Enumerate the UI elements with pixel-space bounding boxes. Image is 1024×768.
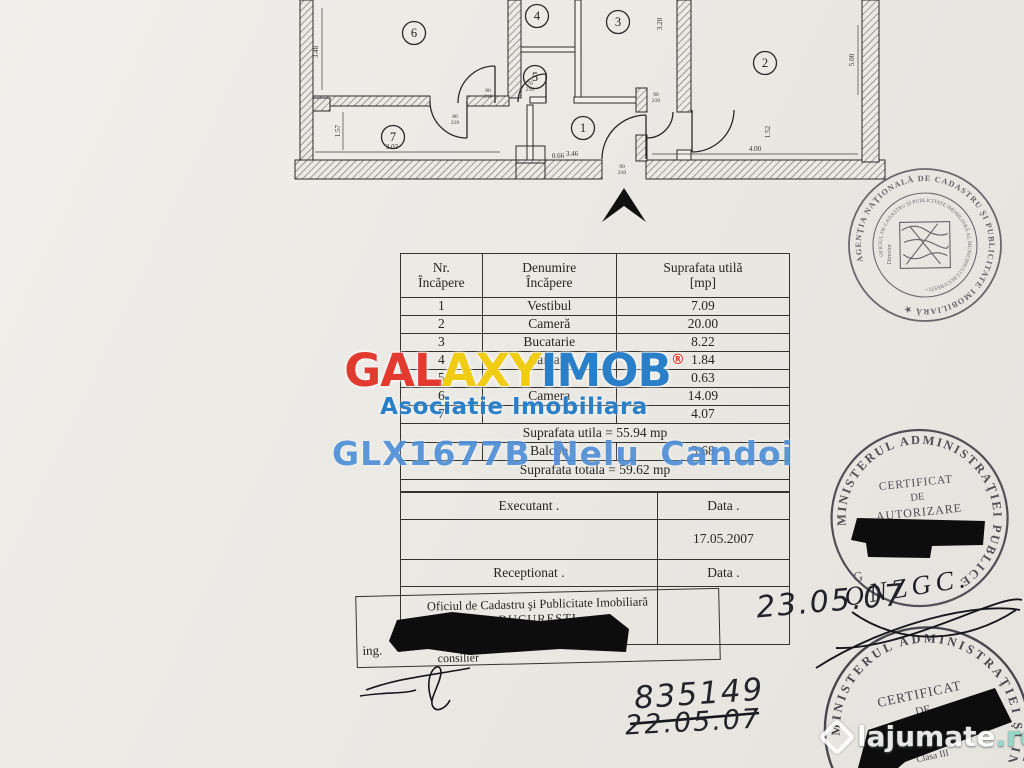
dimension-label: 5.00 (848, 53, 856, 66)
room-number: 7 (390, 130, 396, 144)
room-number: 1 (580, 121, 586, 135)
room-number: 4 (534, 9, 541, 23)
lajumate-watermark: lajumate.ro (824, 720, 1024, 753)
door-size-label: 90210 (618, 164, 627, 176)
lajumate-name: lajumate (857, 720, 995, 753)
galaxyimob-subtitle: Asociatie Imobiliara (336, 394, 692, 420)
room-number: 5 (532, 70, 538, 84)
executant-label: Executant . (401, 493, 658, 520)
header-nr: Nr.Încăpere (401, 254, 483, 298)
agent-code-watermark: GLX1677B Nelu Candoi (332, 434, 794, 473)
dimension-label: 3.46 (566, 150, 579, 158)
executant-date: 17.05.2007 (657, 520, 789, 560)
north-arrow-icon (602, 188, 646, 222)
executant-date-row: 17.05.2007 (401, 520, 790, 560)
logo-part-blue: IMOB (541, 344, 671, 397)
scanned-cadastral-document: 3.03 3.46 4.00 3.48 1.57 3.20 5.00 1.52 … (0, 0, 1024, 768)
door-size-label: 80210 (451, 114, 460, 126)
header-denumire: DenumireÎncăpere (482, 254, 616, 298)
room-number: 3 (615, 15, 621, 29)
table-header-row: Nr.Încăpere DenumireÎncăpere Suprafata u… (401, 254, 790, 298)
executant-header-row: Executant . Data . (401, 493, 790, 520)
data-label: Data . (657, 493, 789, 520)
stamp-director-label: Director (886, 244, 893, 265)
logo-part-red: GAL (344, 344, 441, 397)
lajumate-tld: .ro (995, 720, 1024, 753)
galaxyimob-logo: GALAXYIMOB® (336, 348, 692, 393)
galaxyimob-watermark: GALAXYIMOB® Asociatie Imobiliara (336, 348, 692, 420)
door-size-label: 80210 (484, 88, 493, 100)
table-row: 2Cameră20.00 (401, 316, 790, 334)
dimension-label: 3.48 (312, 45, 320, 58)
ing-label: ing. (362, 643, 382, 659)
empty-row (401, 480, 790, 492)
plan-partitions (516, 0, 691, 163)
logo-part-yellow: AXY (442, 344, 541, 397)
receptionat-header-row: Receptionat . Data . (401, 560, 790, 587)
dimension-label: 1.52 (764, 125, 772, 138)
door-size-label: 90210 (652, 92, 661, 104)
dimension-label: 3.20 (656, 17, 664, 30)
table-row: 1Vestibul7.09 (401, 298, 790, 316)
data-label: Data . (657, 560, 789, 587)
cadastre-office-box: Oficiul de Cadastru şi Publicitate Imobi… (355, 588, 721, 668)
header-suprafata: Suprafata utilă[mp] (616, 254, 789, 298)
stamp-line: AUTORIZARE (875, 501, 962, 524)
registered-mark-icon: ® (671, 352, 684, 368)
handwritten-date: 22.05.07 (624, 703, 762, 741)
plan-dimension-lines (315, 8, 858, 154)
room-number: 2 (762, 56, 768, 70)
room-number: 6 (411, 26, 417, 40)
stamp-line: DE (910, 491, 925, 503)
dimension-label: 1.57 (334, 124, 342, 137)
consilier-label: consilier (438, 650, 480, 666)
lajumate-diamond-icon (819, 718, 856, 755)
stamp-center-emblem (900, 222, 951, 269)
dimension-label: 4.00 (749, 145, 762, 153)
stamp-line: DE (914, 703, 932, 718)
stamp-line: Categoria A (901, 532, 944, 546)
receptionat-label: Receptionat . (401, 560, 658, 587)
stamp-line: CERTIFICAT (878, 473, 953, 493)
dimension-label: 0.66 (552, 152, 565, 160)
